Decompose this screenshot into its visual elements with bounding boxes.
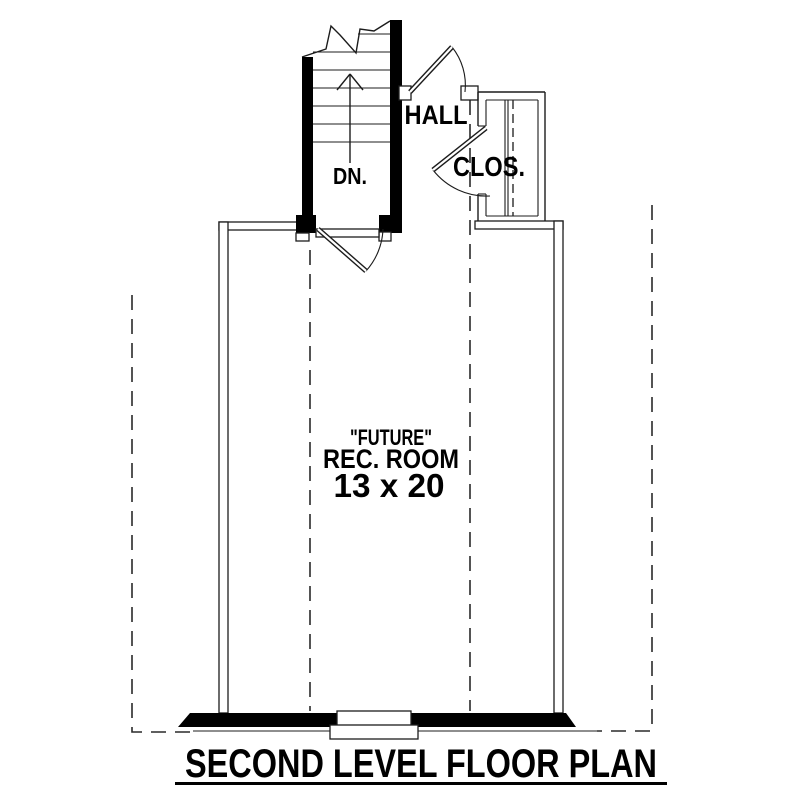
room-dimensions-label: 13 x 20 (334, 467, 445, 504)
stair-door-right-jamb-cap (379, 232, 391, 241)
dashed-roofline-right (597, 205, 652, 731)
hall-door (399, 47, 478, 100)
room-top-wall-left (219, 222, 302, 230)
plan-title-underline (175, 782, 667, 785)
closet-label: CLOS. (453, 151, 525, 182)
stair-door (296, 215, 399, 271)
stair-left-wall (302, 57, 313, 233)
stair-door-right-jamb (379, 215, 399, 233)
hall-door-left-jamb (399, 86, 411, 100)
hall-label: HALL (405, 100, 468, 130)
hall-door-swing-arc (452, 47, 465, 92)
window-opening (337, 711, 411, 726)
hall-door-right-jamb (461, 86, 478, 100)
hall-door-leaf (410, 47, 452, 92)
stair-down-label: DN. (333, 163, 367, 189)
staircase: DN. (302, 20, 402, 233)
room-left-wall (219, 222, 228, 713)
room-top-wall-right (475, 221, 563, 229)
floor-plan-canvas: DN. (0, 0, 800, 800)
bottom-wall (178, 711, 597, 739)
stair-right-wall (390, 20, 402, 233)
plan-title: SECOND LEVEL FLOOR PLAN (185, 742, 657, 786)
stair-direction-arrow (337, 74, 363, 163)
dashed-roofline-left (132, 295, 190, 732)
floor-plan-drawing: DN. (0, 0, 800, 800)
room-right-wall (554, 221, 563, 713)
stair-door-left-jamb-cap (296, 233, 309, 241)
stair-door-left-jamb (296, 215, 316, 233)
window-bay-box (330, 725, 418, 739)
